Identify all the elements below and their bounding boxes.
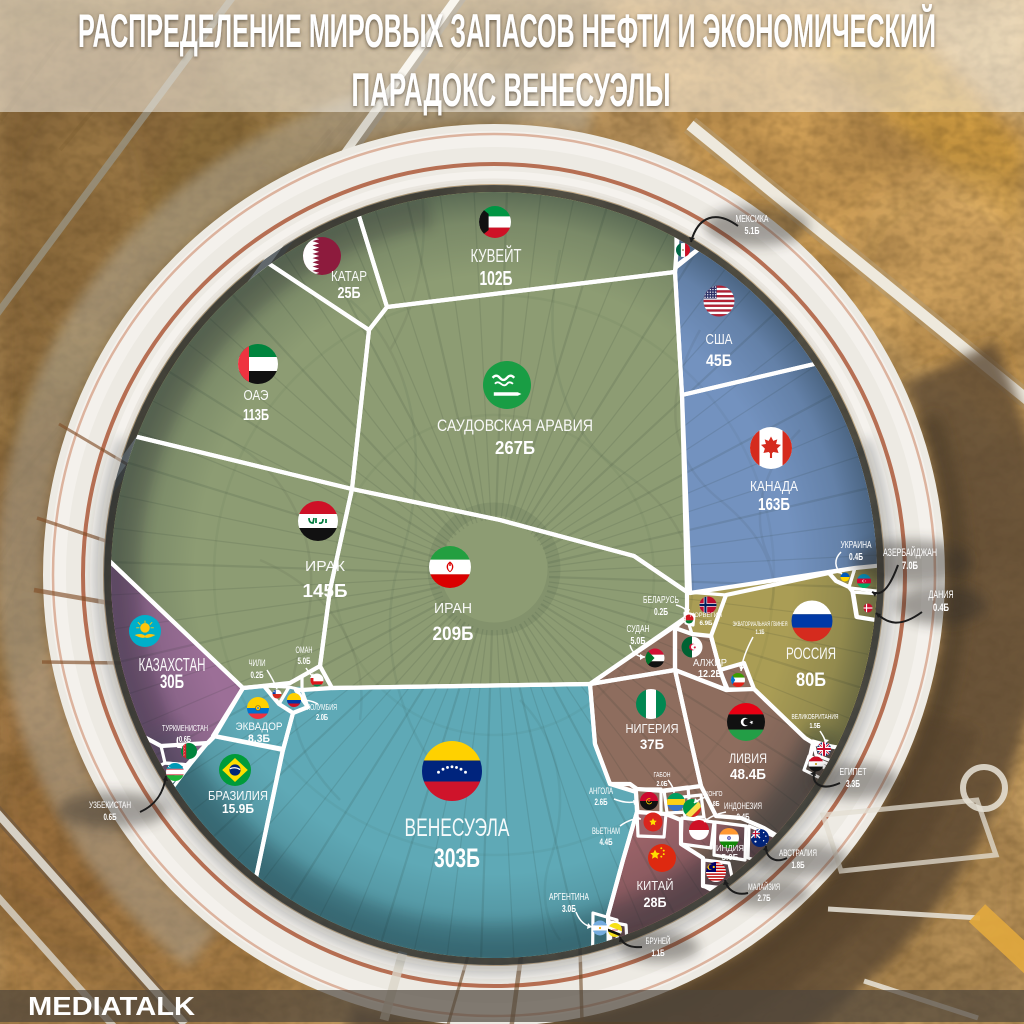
svg-text:1.5Б: 1.5Б xyxy=(810,721,821,730)
svg-text:37Б: 37Б xyxy=(640,736,664,752)
svg-text:2.0Б: 2.0Б xyxy=(316,712,328,722)
svg-text:ИНДИЯ: ИНДИЯ xyxy=(716,844,744,853)
svg-text:1.8Б: 1.8Б xyxy=(709,799,720,808)
svg-text:УКРАИНА: УКРАИНА xyxy=(841,540,872,551)
svg-text:0.6Б: 0.6Б xyxy=(179,734,191,744)
svg-text:КАНАДА: КАНАДА xyxy=(750,478,798,495)
svg-text:25Б: 25Б xyxy=(338,285,361,302)
svg-text:145Б: 145Б xyxy=(303,580,348,601)
svg-text:209Б: 209Б xyxy=(433,623,474,645)
svg-text:РОССИЯ: РОССИЯ xyxy=(786,644,836,663)
svg-text:8.3Б: 8.3Б xyxy=(248,733,270,745)
svg-text:АВСТРАЛИЯ: АВСТРАЛИЯ xyxy=(779,848,817,859)
svg-text:0.4Б: 0.4Б xyxy=(933,602,949,614)
svg-text:РАСПРЕДЕЛЕНИЕ МИРОВЫХ ЗАПАСОВ: РАСПРЕДЕЛЕНИЕ МИРОВЫХ ЗАПАСОВ НЕФТИ И ЭК… xyxy=(78,4,936,57)
svg-text:КОНГО: КОНГО xyxy=(706,789,723,798)
svg-text:ГАБОН: ГАБОН xyxy=(654,770,671,779)
svg-text:4.4Б: 4.4Б xyxy=(600,837,613,847)
svg-text:ВЕЛИКОБРИТАНИЯ: ВЕЛИКОБРИТАНИЯ xyxy=(792,712,839,721)
svg-text:КОЛУМБИЯ: КОЛУМБИЯ xyxy=(307,702,337,712)
svg-text:267Б: 267Б xyxy=(495,437,535,458)
svg-text:КИТАЙ: КИТАЙ xyxy=(637,878,674,893)
svg-text:113Б: 113Б xyxy=(243,407,269,424)
svg-text:30Б: 30Б xyxy=(160,672,184,693)
svg-text:2.6Б: 2.6Б xyxy=(595,797,608,807)
svg-text:ОАЭ: ОАЭ xyxy=(244,387,269,404)
svg-text:ЭКВАДОР: ЭКВАДОР xyxy=(236,721,283,733)
svg-text:0.4Б: 0.4Б xyxy=(849,552,863,563)
svg-text:0.6Б: 0.6Б xyxy=(104,812,117,823)
svg-text:АЗЕРБАЙДЖАН: АЗЕРБАЙДЖАН xyxy=(883,546,937,559)
svg-text:САУДОВСКАЯ АРАВИЯ: САУДОВСКАЯ АРАВИЯ xyxy=(437,416,593,435)
svg-text:3.0Б: 3.0Б xyxy=(562,904,576,915)
svg-text:ПАРАДОКС ВЕНЕСУЭЛЫ: ПАРАДОКС ВЕНЕСУЭЛЫ xyxy=(352,63,671,116)
svg-text:ИРАК: ИРАК xyxy=(305,559,346,575)
svg-text:ЕГИПЕТ: ЕГИПЕТ xyxy=(840,767,867,778)
svg-text:15.9Б: 15.9Б xyxy=(222,801,254,816)
svg-text:0.2Б: 0.2Б xyxy=(654,607,668,618)
svg-text:1.1Б: 1.1Б xyxy=(756,630,765,636)
svg-text:6.9Б: 6.9Б xyxy=(700,620,713,627)
svg-text:45Б: 45Б xyxy=(706,351,732,370)
svg-text:0.2Б: 0.2Б xyxy=(251,670,264,681)
svg-text:БЕЛАРУСЬ: БЕЛАРУСЬ xyxy=(643,595,679,606)
svg-text:МЕКСИКА: МЕКСИКА xyxy=(736,213,769,225)
svg-text:НИГЕРИЯ: НИГЕРИЯ xyxy=(626,721,679,736)
svg-text:АНГОЛА: АНГОЛА xyxy=(589,786,613,796)
svg-text:3.3Б: 3.3Б xyxy=(846,779,860,790)
svg-text:ЛИВИЯ: ЛИВИЯ xyxy=(729,750,767,766)
svg-text:США: США xyxy=(706,331,733,348)
svg-text:12.2Б: 12.2Б xyxy=(698,669,722,680)
svg-text:7.0Б: 7.0Б xyxy=(902,560,918,572)
svg-text:1.8Б: 1.8Б xyxy=(792,860,805,871)
svg-text:МАЛАЙЗИЯ: МАЛАЙЗИЯ xyxy=(748,881,780,892)
svg-text:5.0Б: 5.0Б xyxy=(722,853,739,862)
svg-text:28Б: 28Б xyxy=(644,894,667,910)
svg-text:2.0Б: 2.0Б xyxy=(657,779,668,788)
svg-text:80Б: 80Б xyxy=(796,670,826,691)
svg-text:ИНДОНЕЗИЯ: ИНДОНЕЗИЯ xyxy=(724,801,762,812)
svg-text:НОРВЕГИЯ: НОРВЕГИЯ xyxy=(690,612,722,619)
svg-text:MEDIATALK: MEDIATALK xyxy=(28,991,195,1021)
svg-text:ОМАН: ОМАН xyxy=(296,645,313,656)
svg-text:2.4Б: 2.4Б xyxy=(737,812,750,823)
svg-text:102Б: 102Б xyxy=(480,268,513,290)
svg-text:КАТАР: КАТАР xyxy=(331,269,367,285)
svg-text:48.4Б: 48.4Б xyxy=(730,766,766,783)
svg-text:5.1Б: 5.1Б xyxy=(745,225,760,237)
svg-text:5.0Б: 5.0Б xyxy=(298,656,311,667)
svg-text:ИРАН: ИРАН xyxy=(434,601,472,617)
svg-text:УЗБЕКИСТАН: УЗБЕКИСТАН xyxy=(89,800,131,811)
svg-text:2.7Б: 2.7Б xyxy=(758,893,771,903)
svg-text:ЭКВАТОРИАЛЬНАЯ ГВИНЕЯ: ЭКВАТОРИАЛЬНАЯ ГВИНЕЯ xyxy=(733,622,788,628)
svg-text:АРГЕНТИНА: АРГЕНТИНА xyxy=(549,892,589,903)
svg-text:ВЬЕТНАМ: ВЬЕТНАМ xyxy=(592,826,620,836)
svg-text:БРУНЕЙ: БРУНЕЙ xyxy=(646,935,671,947)
svg-text:ВЕНЕСУЭЛА: ВЕНЕСУЭЛА xyxy=(405,814,510,842)
svg-text:303Б: 303Б xyxy=(434,843,480,873)
svg-text:ТУРКМЕНИСТАН: ТУРКМЕНИСТАН xyxy=(162,723,208,733)
svg-text:163Б: 163Б xyxy=(758,494,790,514)
svg-text:КУВЕЙТ: КУВЕЙТ xyxy=(471,245,522,266)
svg-text:ДАНИЯ: ДАНИЯ xyxy=(929,589,954,601)
svg-text:ЧИЛИ: ЧИЛИ xyxy=(249,658,266,669)
svg-text:5.0Б: 5.0Б xyxy=(631,635,646,647)
svg-text:АЛЖИР: АЛЖИР xyxy=(693,658,727,669)
svg-text:1.1Б: 1.1Б xyxy=(652,948,665,959)
svg-text:СУДАН: СУДАН xyxy=(627,623,650,635)
